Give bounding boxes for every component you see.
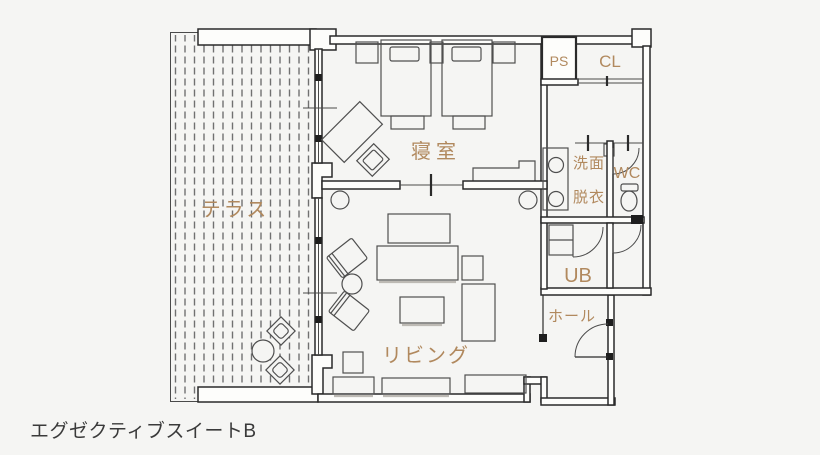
downlight	[331, 191, 349, 209]
bed	[381, 40, 431, 116]
living-label: リビング	[382, 344, 470, 367]
bedroom-chair	[357, 144, 390, 177]
entrance-door-arc	[575, 324, 608, 357]
hall: ホール	[539, 295, 613, 360]
unit-bath-label: UB	[564, 265, 592, 287]
sink-icon	[549, 158, 564, 173]
wall-wc-bottom	[541, 217, 644, 223]
window-mullion	[316, 135, 322, 142]
nightstand	[430, 42, 443, 63]
armchair	[328, 291, 369, 331]
window-mullion	[316, 74, 322, 81]
wall-block-left-bottom	[312, 355, 332, 394]
sink-icon	[549, 192, 564, 207]
chaise	[462, 284, 495, 341]
floor-plan-svg: テラス	[0, 0, 820, 455]
bed	[442, 40, 492, 116]
terrace-wall-bottom	[198, 387, 318, 402]
floor-plan: テラス	[0, 0, 820, 455]
partition-bedroom-living	[322, 174, 547, 196]
unit-bath: UB	[549, 223, 641, 288]
sofa	[377, 246, 458, 280]
ub-door-arc	[613, 225, 641, 253]
plant-stand	[343, 352, 363, 373]
bedroom: 寝室	[322, 40, 535, 183]
nightstand	[356, 42, 378, 63]
coffee-table	[400, 297, 444, 323]
terrace-wall-top	[198, 29, 316, 45]
bed-foot-mat	[453, 116, 485, 129]
tv-board	[388, 214, 450, 243]
wall-below-ps	[541, 79, 578, 85]
bath-door-arc	[573, 227, 603, 257]
wall-ub-divider	[607, 223, 613, 288]
terrace-label: テラス	[201, 199, 270, 221]
wall-hall-bottom	[541, 398, 615, 405]
shaft-block	[631, 215, 643, 224]
window-bench	[333, 377, 374, 394]
armchair	[326, 238, 367, 278]
wc-room: WC	[541, 141, 644, 224]
wall-right	[643, 46, 650, 295]
cl-label: CL	[599, 52, 621, 71]
living-room: リビング	[326, 191, 537, 396]
window-bench	[382, 378, 450, 394]
bed-foot-mat	[391, 116, 424, 129]
door-hinge	[606, 319, 613, 326]
partition-right-segment	[463, 181, 547, 189]
hall-label: ホール	[548, 308, 596, 325]
nightstand	[493, 42, 515, 63]
washroom-label-line2: 脱衣	[573, 189, 605, 206]
bedroom-bench	[473, 161, 535, 183]
wall-hall-right	[608, 295, 614, 405]
wall-wc-left	[607, 141, 613, 223]
window-bench	[465, 375, 526, 393]
side-cabinet	[462, 256, 483, 280]
bedroom-label: 寝室	[411, 140, 461, 163]
terrace-room: テラス	[171, 29, 319, 402]
ps-label: PS	[550, 53, 569, 69]
wall-ub-bottom	[541, 288, 651, 295]
downlight	[519, 191, 537, 209]
toilet-tank-icon	[621, 184, 638, 191]
plan-caption: エグゼクティブスイートB	[30, 419, 257, 442]
toilet-bowl-icon	[621, 191, 637, 211]
wc-label: WC	[614, 165, 641, 182]
corner-block-top-right	[632, 29, 651, 47]
washroom-label-line1: 洗面	[573, 155, 605, 172]
window-mullion	[316, 237, 322, 244]
wall-end-cap	[539, 334, 547, 342]
window-mullion	[316, 316, 322, 323]
partition-left-segment	[322, 181, 400, 189]
bed-pillow	[452, 47, 481, 61]
terrace-table	[252, 340, 274, 362]
bed-pillow	[390, 47, 419, 61]
